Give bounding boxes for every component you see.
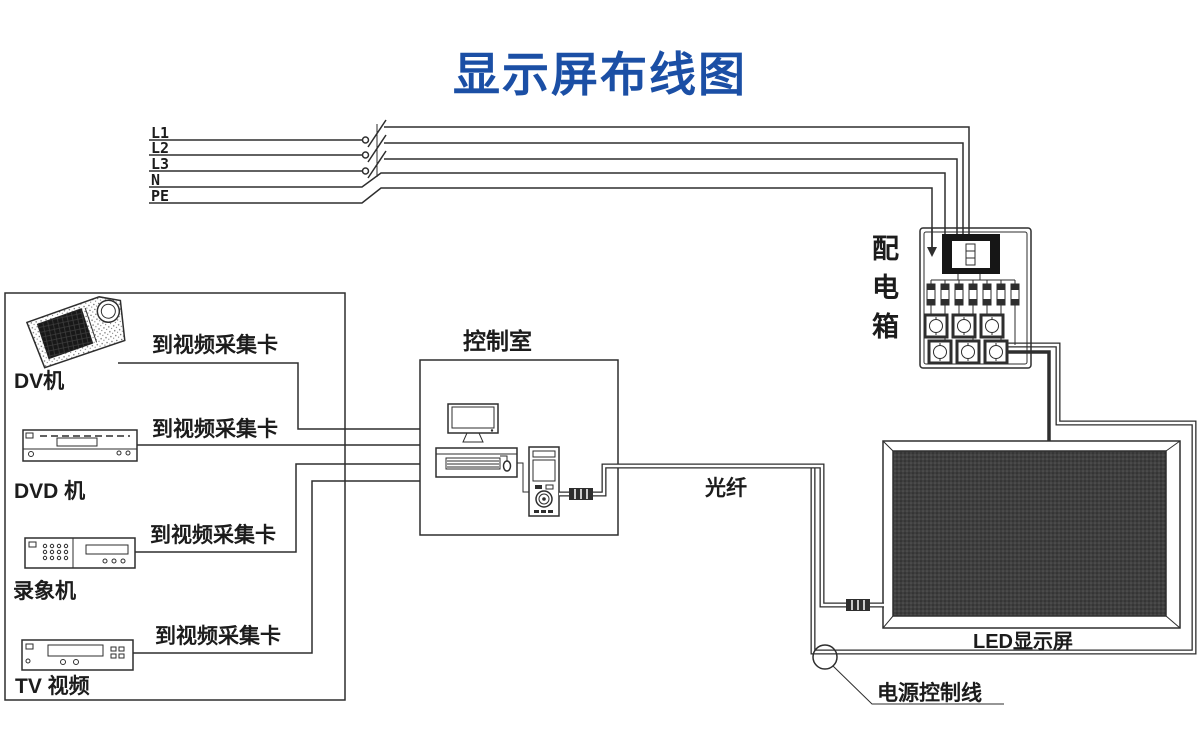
device-label-tv: TV 视频 [15, 670, 90, 700]
monitor [448, 404, 498, 442]
capture-card-label-dv: 到视频采集卡 [152, 329, 278, 359]
mains-wires [149, 120, 969, 247]
capture-card-label-recorder: 到视频采集卡 [150, 519, 276, 549]
socket [985, 341, 1007, 363]
distribution-box-label: 配电箱 [869, 234, 896, 379]
socket [981, 315, 1003, 337]
switch-symbols [363, 120, 387, 178]
video-recorder [25, 538, 135, 568]
control-room-label: 控制室 [463, 322, 532, 356]
fuse [941, 284, 949, 305]
socket [957, 341, 979, 363]
capture-card-label-dvd: 到视频采集卡 [152, 413, 278, 443]
main-breaker [942, 234, 1000, 274]
mains-label-pe: PE [151, 187, 169, 205]
led-display-label: LED显示屏 [973, 625, 1073, 654]
control-room-box [420, 360, 618, 535]
wire-PE [149, 188, 932, 247]
fuse [983, 284, 991, 305]
fuse [927, 284, 935, 305]
capture-card-label-tv: 到视频采集卡 [155, 620, 281, 650]
socket [953, 315, 975, 337]
device-label-dv: DV机 [14, 365, 64, 395]
fuses [927, 284, 1019, 305]
source-cables [118, 363, 420, 653]
dvd-player [23, 430, 137, 461]
fiber-connector-pc [569, 488, 593, 500]
dv-camera [25, 293, 131, 370]
fuse [1011, 284, 1019, 305]
power-feed-cable [1007, 352, 1049, 441]
fuse [997, 284, 1005, 305]
led-screen [893, 451, 1166, 616]
wiring-diagram: 显示屏布线图 L1 L2 L3 N PE 到视频采集卡 到视频采集卡 到视频采集… [0, 0, 1200, 752]
desk [436, 448, 517, 477]
fiber-label: 光纤 [705, 472, 747, 502]
sockets [925, 315, 1007, 363]
tv-video-device [22, 640, 133, 670]
led-display [883, 441, 1180, 628]
desk-to-tower-wire [517, 463, 529, 492]
pc-tower [529, 447, 559, 516]
socket [925, 315, 947, 337]
page-title: 显示屏布线图 [0, 36, 1200, 105]
power-control-label: 电源控制线 [877, 677, 982, 707]
fuse [955, 284, 963, 305]
socket [929, 341, 951, 363]
device-label-dvd: DVD 机 [14, 475, 85, 505]
device-label-recorder: 录象机 [13, 575, 76, 605]
fuse [969, 284, 977, 305]
fiber-connector-led [846, 599, 870, 611]
